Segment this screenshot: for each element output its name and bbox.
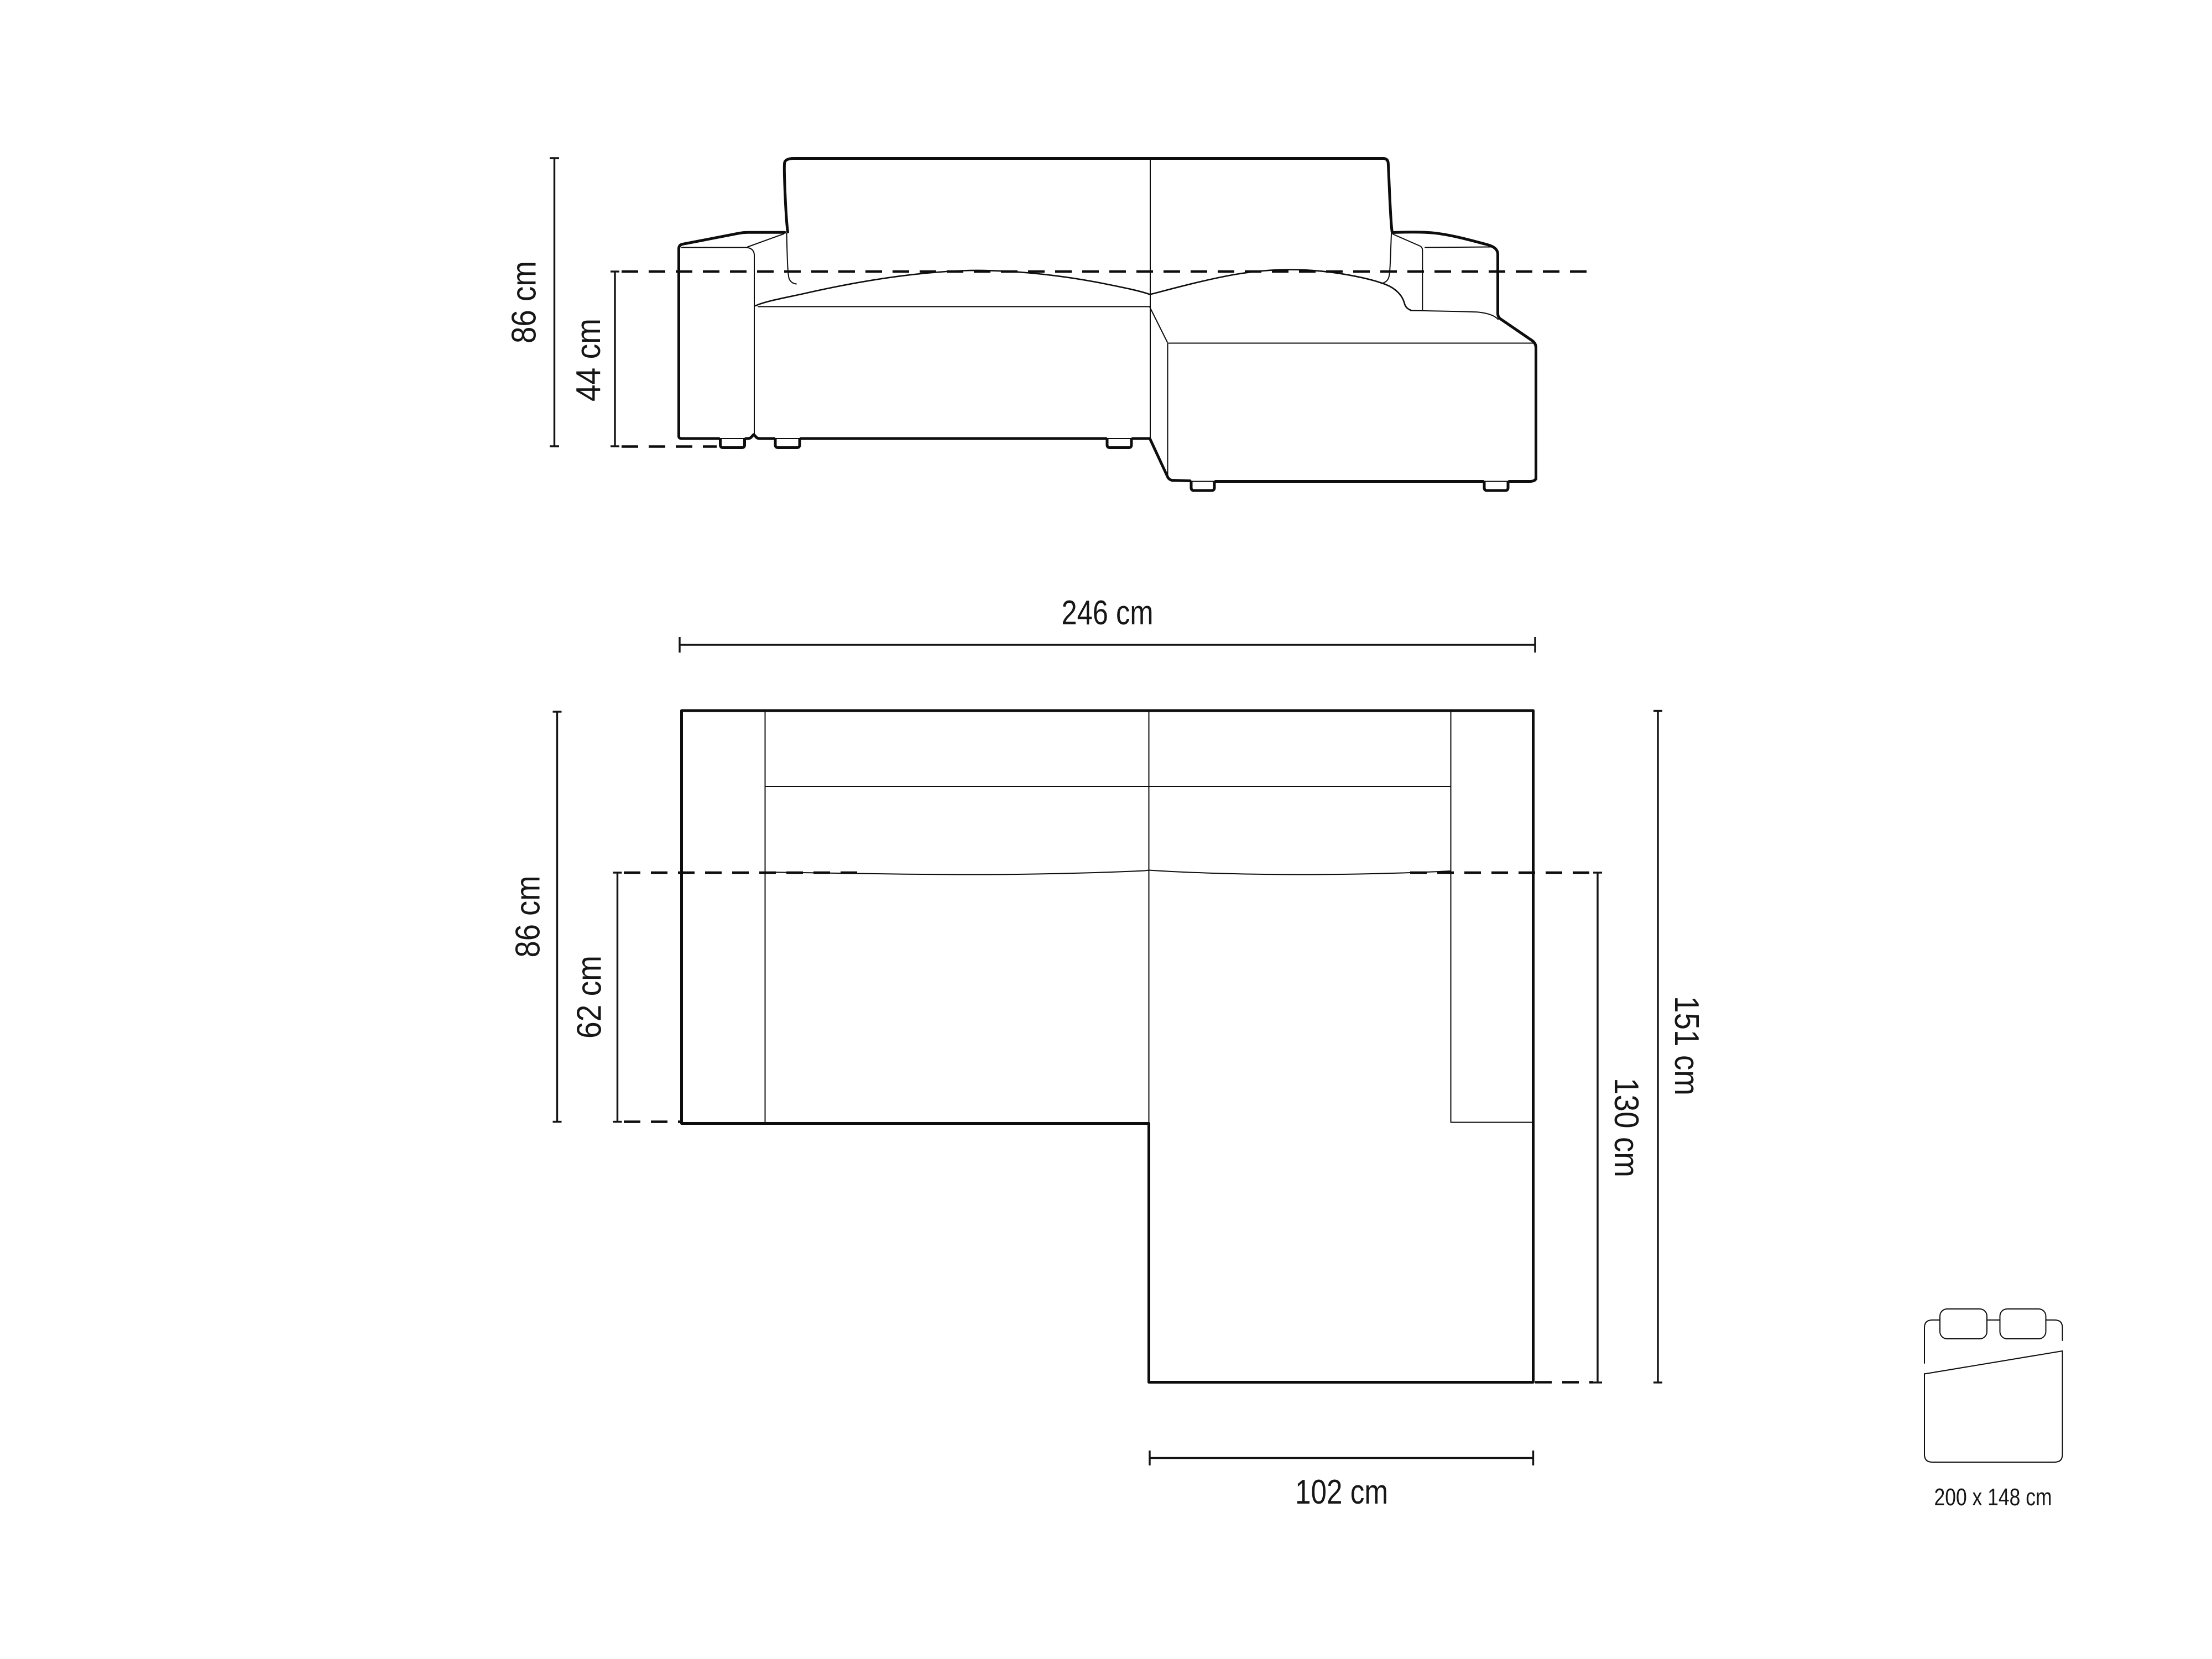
svg-text:246 cm: 246 cm: [1062, 594, 1154, 632]
svg-text:102 cm: 102 cm: [1295, 1473, 1388, 1511]
svg-text:44 cm: 44 cm: [570, 319, 608, 401]
svg-text:200 x 148 cm: 200 x 148 cm: [1934, 1484, 2052, 1511]
svg-text:151 cm: 151 cm: [1667, 996, 1705, 1095]
svg-text:130 cm: 130 cm: [1607, 1078, 1645, 1177]
svg-text:86 cm: 86 cm: [509, 876, 547, 958]
svg-text:62 cm: 62 cm: [571, 956, 609, 1039]
svg-text:86 cm: 86 cm: [505, 261, 544, 343]
